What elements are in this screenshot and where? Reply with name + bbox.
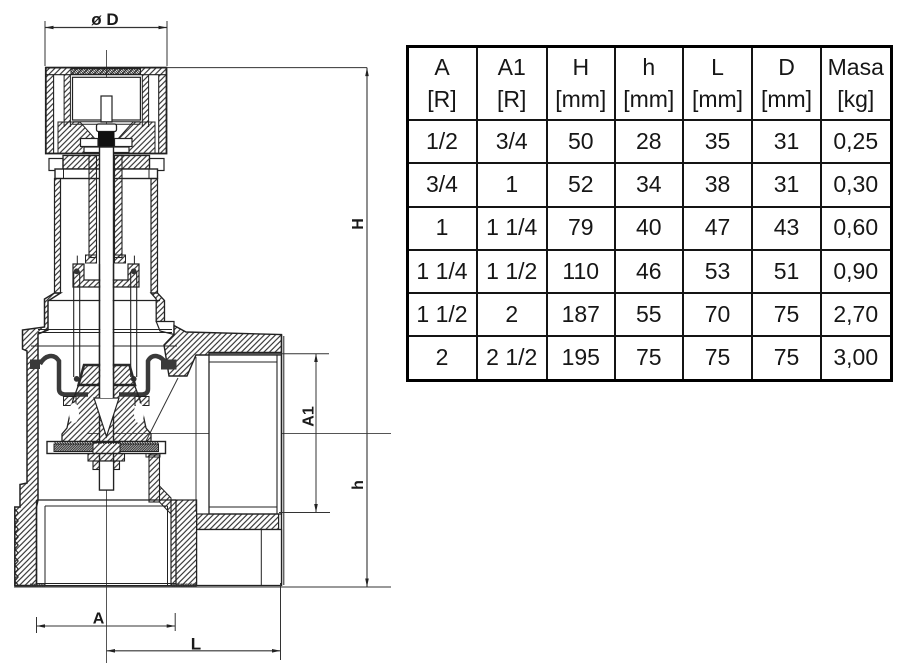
svg-text:H: H	[350, 218, 367, 230]
svg-text:L: L	[191, 634, 201, 653]
svg-text:A1: A1	[301, 406, 318, 427]
svg-text:h: h	[350, 480, 367, 490]
svg-text:ø D: ø D	[91, 10, 118, 29]
svg-text:A: A	[93, 611, 105, 628]
